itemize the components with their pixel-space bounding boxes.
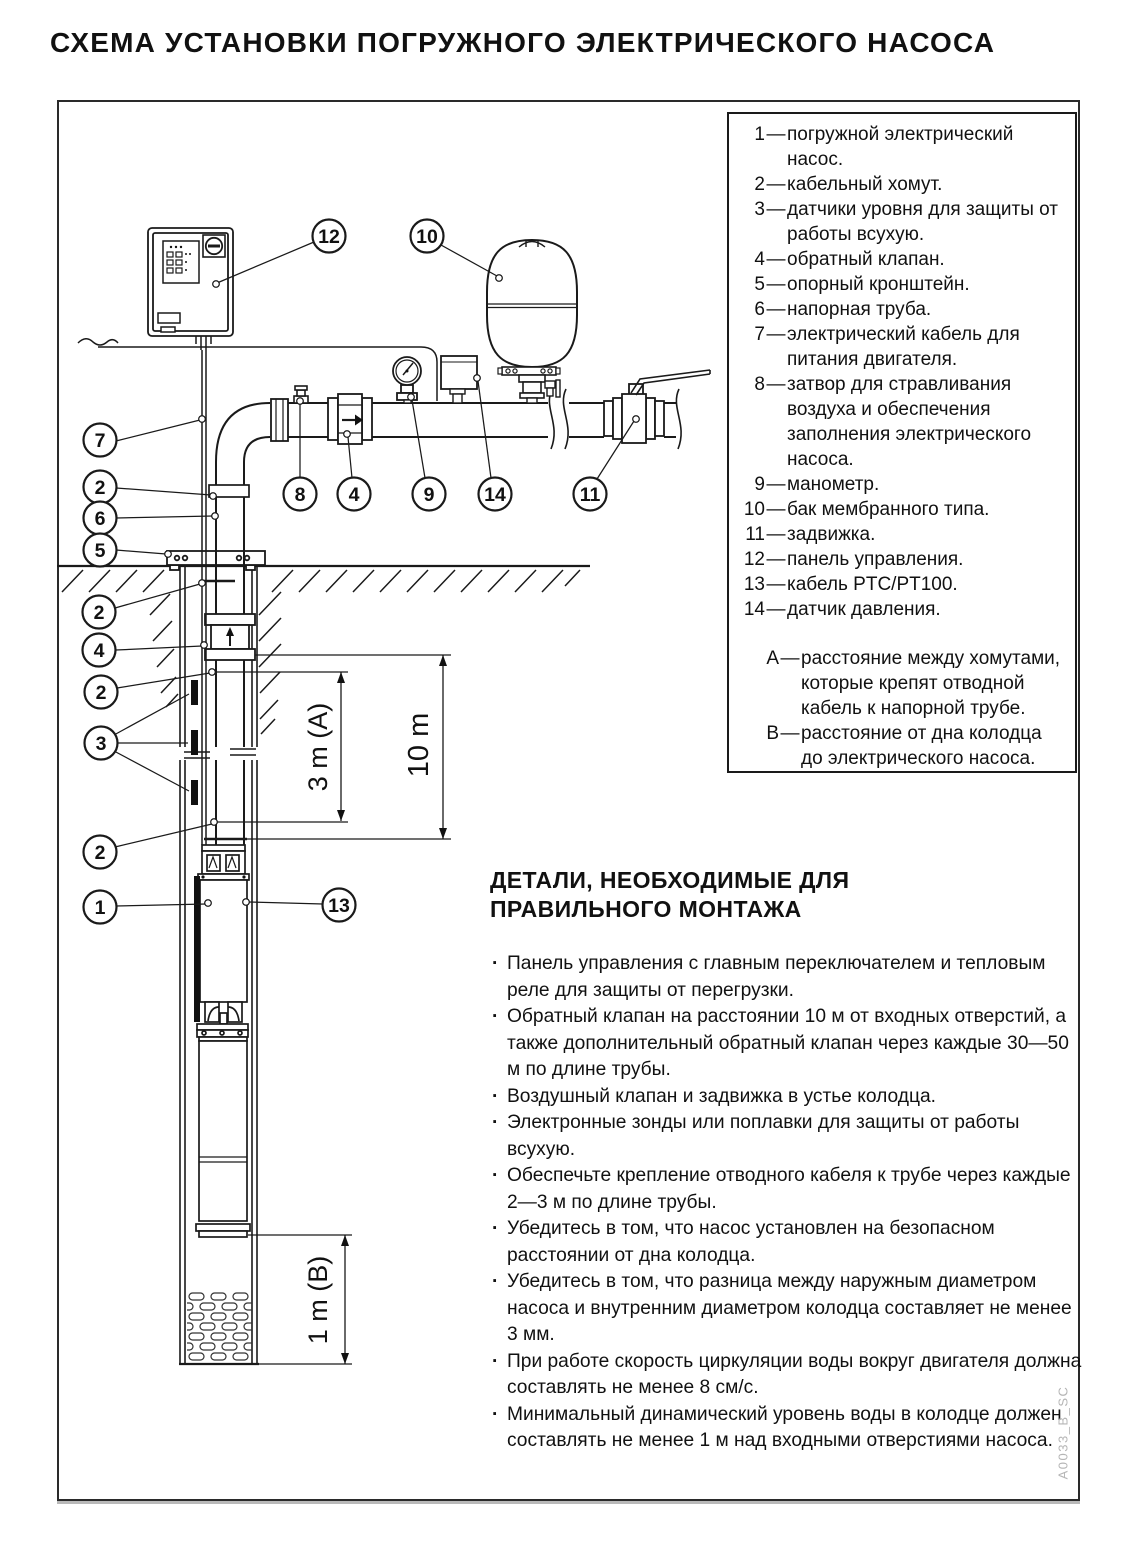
svg-text:5: 5 [95, 540, 106, 562]
pump-cable [196, 336, 211, 845]
legend-item: 14—датчик давления. [735, 597, 1067, 622]
level-sensors [191, 680, 198, 805]
callout-5: 5 [84, 534, 117, 567]
parts-item: Убедитесь в том, что разница между наруж… [490, 1269, 1084, 1349]
gravel-screen [187, 1292, 252, 1362]
callout-7: 7 [84, 424, 117, 457]
parts-heading-line1: ДЕТАЛИ, НЕОБХОДИМЫЕ ДЛЯ [490, 866, 849, 895]
legend-item: 1—погружной электрический насос. [735, 122, 1067, 172]
svg-text:2: 2 [94, 602, 105, 624]
callout-11: 11 [574, 478, 607, 511]
legend-item: 7—электрический кабель для питания двига… [735, 322, 1067, 372]
callout-4a: 4 [338, 478, 371, 511]
svg-text:3: 3 [96, 733, 107, 755]
legend-item: 5—опорный кронштейн. [735, 272, 1067, 297]
callout-2c: 2 [85, 676, 118, 709]
legend-item: 4—обратный клапан. [735, 247, 1067, 272]
well-break-symbol [174, 747, 262, 760]
svg-text:13: 13 [328, 895, 350, 917]
dimension-3m: 3 m (A) [303, 672, 345, 821]
svg-text:10: 10 [416, 226, 438, 248]
dimension-10m: 10 m [403, 655, 447, 839]
dimension-1m: 1 m (B) [259, 1235, 352, 1364]
parts-item: Минимальный динамический уровень воды в … [490, 1402, 1084, 1455]
legend-item: 9—манометр. [735, 472, 1067, 497]
callout-1: 1 [84, 891, 117, 924]
parts-item: Обеспечьте крепление отводного кабеля к … [490, 1163, 1084, 1216]
svg-text:1: 1 [95, 897, 106, 919]
legend-note-b: B—расстояние от дна колодца до электриче… [749, 721, 1067, 771]
parts-item: Обратный клапан на расстоянии 10 м от вх… [490, 1004, 1084, 1084]
legend-box: 1—погружной электрический насос. 2—кабел… [727, 112, 1077, 773]
callout-8: 8 [284, 478, 317, 511]
pressure-gauge [393, 357, 421, 403]
legend-item: 12—панель управления. [735, 547, 1067, 572]
parts-item: При работе скорость циркуляции воды вокр… [490, 1349, 1084, 1402]
parts-item: Воздушный клапан и задвижка в устье коло… [490, 1084, 1084, 1111]
callout-2d: 2 [84, 836, 117, 869]
parts-item: Убедитесь в том, что насос установлен на… [490, 1216, 1084, 1269]
svg-text:4: 4 [94, 640, 105, 662]
panel-cable [78, 339, 437, 401]
svg-text:9: 9 [424, 484, 435, 506]
membrane-tank [487, 240, 577, 403]
svg-text:7: 7 [95, 430, 106, 452]
svg-text:4: 4 [349, 484, 360, 506]
callout-14: 14 [479, 478, 512, 511]
callout-10: 10 [411, 220, 444, 253]
callout-9: 9 [413, 478, 446, 511]
pressure-sensor [441, 356, 477, 403]
parts-item: Панель управления с главным переключател… [490, 951, 1084, 1004]
dimension-1m-label: 1 m (B) [303, 1256, 333, 1345]
legend-item: 3—датчики уровня для защиты от работы вс… [735, 197, 1067, 247]
callout-4b: 4 [83, 634, 116, 667]
legend-item: 13—кабель PTC/PT100. [735, 572, 1067, 597]
legend-item: 10—бак мембранного типа. [735, 497, 1067, 522]
legend-item: 11—задвижка. [735, 522, 1067, 547]
legend-note-a: A—расстояние между хомутами, которые кре… [749, 646, 1067, 721]
svg-text:2: 2 [95, 842, 106, 864]
legend-item: 2—кабельный хомут. [735, 172, 1067, 197]
svg-text:6: 6 [95, 508, 106, 530]
gate-valve [604, 370, 710, 443]
callout-2b: 2 [83, 596, 116, 629]
parts-heading-line2: ПРАВИЛЬНОГО МОНТАЖА [490, 895, 849, 924]
svg-text:2: 2 [95, 477, 106, 499]
callout-6: 6 [84, 502, 117, 535]
parts-list: Панель управления с главным переключател… [490, 951, 1084, 1455]
svg-text:2: 2 [96, 682, 107, 704]
callout-12: 12 [313, 220, 346, 253]
svg-text:8: 8 [295, 484, 306, 506]
legend-item: 8—затвор для стравливания воздуха и обес… [735, 372, 1067, 472]
svg-text:12: 12 [318, 226, 340, 248]
legend-item: 6—напорная труба. [735, 297, 1067, 322]
parts-item: Электронные зонды или поплавки для защит… [490, 1110, 1084, 1163]
svg-text:11: 11 [580, 484, 601, 506]
callout-2a: 2 [84, 471, 117, 504]
callout-13: 13 [323, 889, 356, 922]
well-check-valve [205, 614, 255, 660]
callout-3: 3 [85, 727, 118, 760]
parts-heading: ДЕТАЛИ, НЕОБХОДИМЫЕ ДЛЯ ПРАВИЛЬНОГО МОНТ… [490, 866, 849, 924]
dimension-10m-label: 10 m [403, 713, 435, 777]
svg-text:14: 14 [484, 484, 506, 506]
dimension-3m-label: 3 m (A) [303, 703, 333, 792]
drawing-code: A0033_B_SC [1056, 1378, 1071, 1488]
